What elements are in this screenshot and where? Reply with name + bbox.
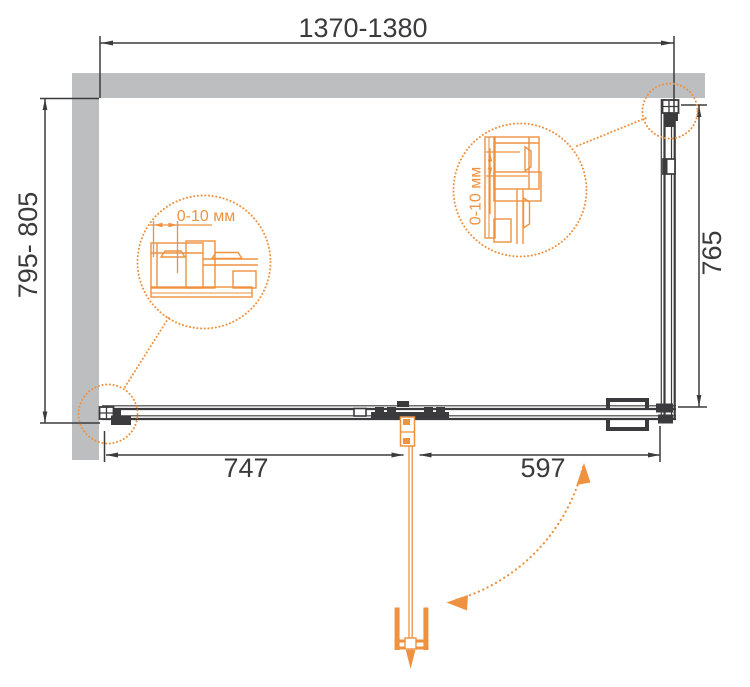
side-panel-vertical xyxy=(661,99,674,420)
wall-top xyxy=(72,73,705,98)
dimension-bottom-right: 597 xyxy=(420,426,661,483)
wall-left xyxy=(72,73,99,460)
detail-dimension-right xyxy=(486,148,528,214)
door-tip xyxy=(406,650,416,669)
dimension-right: 765 xyxy=(678,105,727,407)
dimension-left-label: 795- 805 xyxy=(13,192,43,299)
detail-left-label: 0-10 мм xyxy=(177,208,235,225)
dimension-bottom-left: 747 xyxy=(105,431,404,483)
dimension-597-label: 597 xyxy=(520,453,565,483)
detail-leader-right xyxy=(577,118,646,146)
swing-arc xyxy=(452,467,583,601)
swing-arrowhead-left-icon xyxy=(447,595,469,611)
detail-right-label: 0-10 мм xyxy=(468,167,485,225)
door-glass xyxy=(409,446,412,652)
dimension-747-label: 747 xyxy=(223,453,268,483)
panel-connector xyxy=(663,159,675,174)
panel-handle xyxy=(608,400,647,429)
swing-arrowhead-up-icon xyxy=(577,463,591,485)
detail-leader-left xyxy=(124,318,169,389)
dimension-right-label: 765 xyxy=(697,230,727,275)
installation-diagram: 1370-1380 795- 805 765 747 597 xyxy=(0,0,750,687)
door-swing-arrow xyxy=(447,463,591,611)
door-handle xyxy=(395,608,429,651)
dimension-top-label: 1370-1380 xyxy=(298,13,427,43)
detail-circle-right: 0-10 мм xyxy=(454,118,647,257)
detail-circle-left: 0-10 мм xyxy=(124,196,271,390)
